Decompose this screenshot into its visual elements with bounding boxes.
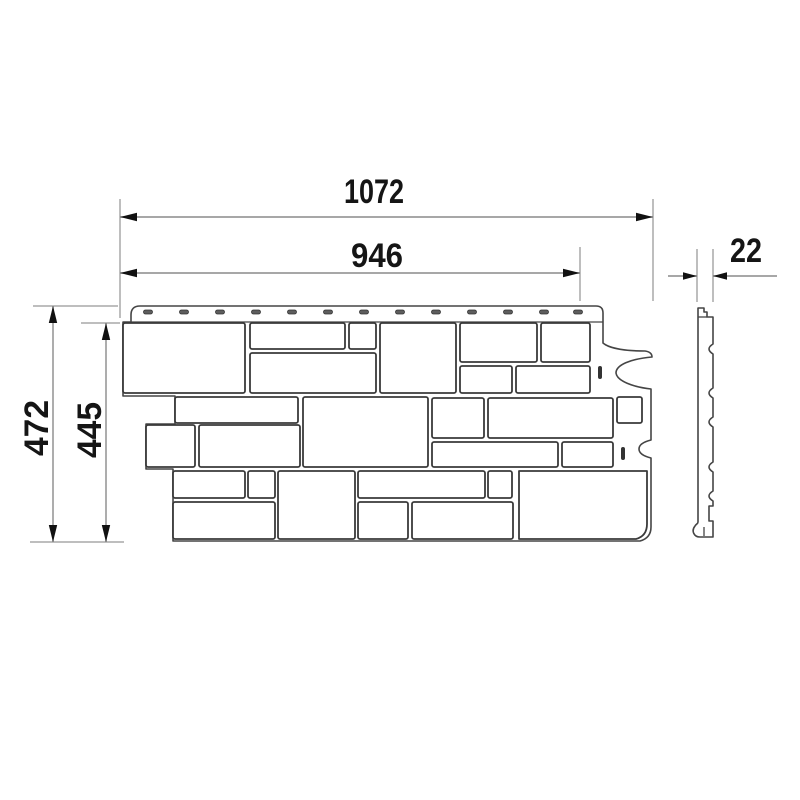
stone-block [173,502,275,539]
arrow-down-icon [49,525,57,542]
arrow-right-icon [636,213,653,221]
stone-block [173,471,245,498]
nail-slot [468,310,477,314]
technical-drawing: 1072 946 22 472 445 [0,0,800,800]
arrow-left-icon [120,213,137,221]
dim-overall-width-label: 1072 [344,173,404,211]
stone-blocks-row-2 [146,397,642,467]
dim-exposed-height-label: 445 [71,402,109,458]
dimension-thickness: 22 [668,232,777,302]
stone-block [199,425,300,467]
stone-block [349,323,376,349]
stone-block [250,353,376,393]
dim-overall-height-label: 472 [18,400,56,456]
panel-side-view [693,308,713,537]
arrow-down-icon [102,525,110,542]
nail-slot [360,310,369,314]
stone-block [248,471,275,498]
nail-slot [432,310,441,314]
stone-block [303,397,428,467]
nail-slot [574,310,583,314]
arrow-right-icon [563,269,580,277]
stone-block [562,442,613,467]
panel-front-view [123,306,652,541]
stone-block [488,398,613,438]
nail-slot [288,310,297,314]
stone-block [250,323,345,349]
dim-thickness-label: 22 [730,232,762,270]
side-profile-outline [693,308,713,537]
arrow-left-icon [713,272,727,280]
stone-block [175,397,298,423]
arrow-up-icon [49,306,57,323]
stone-block [617,397,642,423]
stone-block [541,323,590,362]
dimension-exposed-width: 946 [120,237,580,301]
stone-block [358,471,485,498]
dim-exposed-width-label: 946 [351,237,403,275]
nail-slot [180,310,189,314]
nail-slot [252,310,261,314]
nail-slot [324,310,333,314]
nail-slot [144,310,153,314]
stone-block [460,366,512,393]
interlock-slot [598,366,602,379]
stone-block [358,502,408,539]
stone-block [278,471,355,539]
nail-slot [396,310,405,314]
nail-slot [216,310,225,314]
stone-block [412,502,513,539]
interlock-slot [621,447,625,460]
arrow-left-icon [120,269,137,277]
stone-block [432,398,484,438]
stone-block [123,323,245,393]
stone-block [519,471,647,539]
stone-block [516,366,590,393]
stone-block [488,471,512,498]
arrow-up-icon [102,323,110,340]
stone-blocks-row-1 [123,323,590,393]
nail-slot [504,310,513,314]
stone-block [380,323,456,393]
arrow-right-icon [683,272,697,280]
drawing-canvas: 1072 946 22 472 445 [0,0,800,800]
stone-block [146,425,195,467]
stone-block [460,323,537,362]
nail-slot [540,310,549,314]
dimension-exposed-height: 445 [71,323,120,542]
stone-block [432,442,558,467]
